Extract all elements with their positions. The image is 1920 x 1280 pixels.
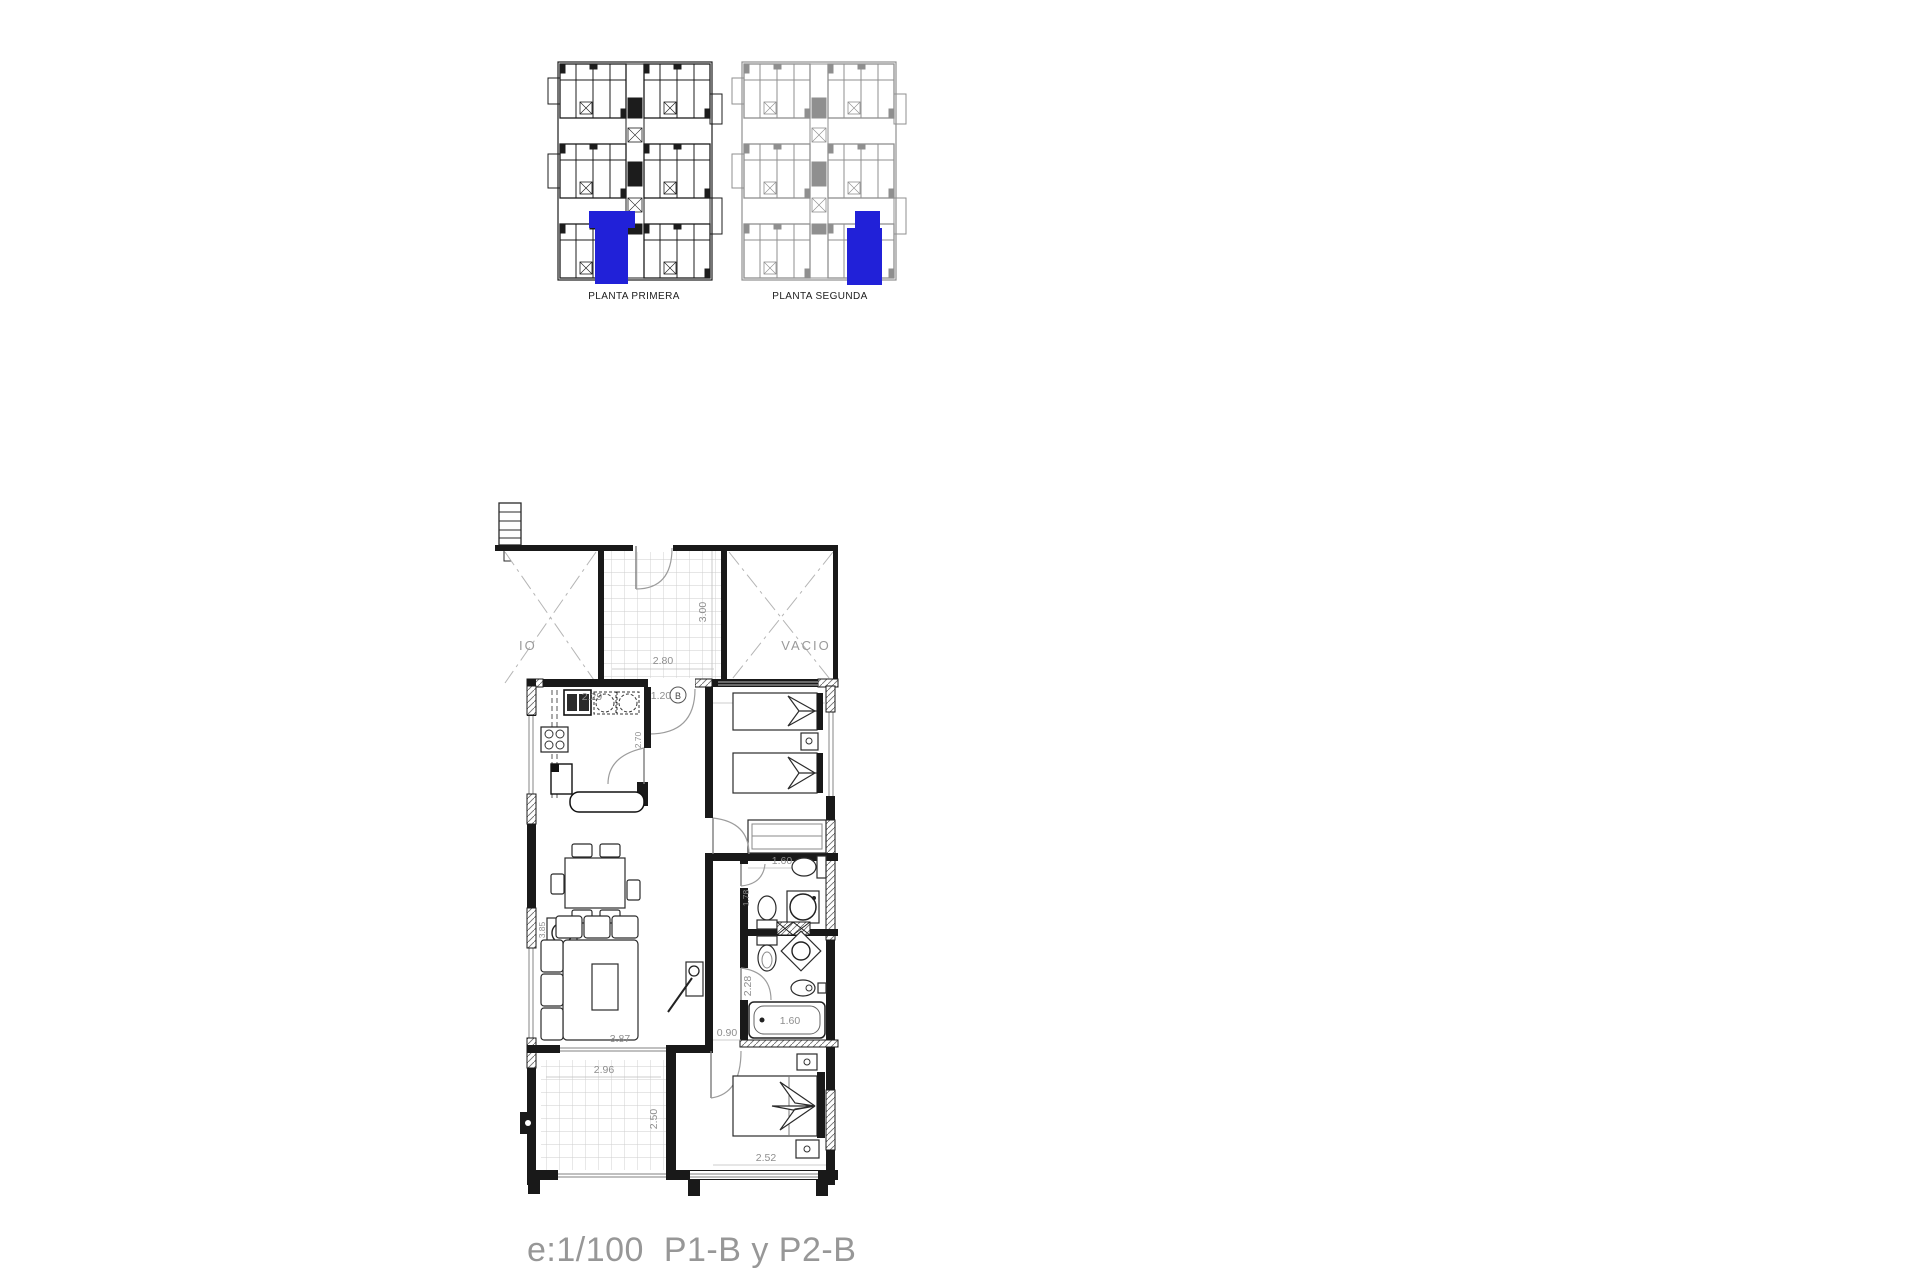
wardrobe <box>748 820 826 853</box>
round-sink <box>787 891 819 923</box>
washer-counter <box>777 922 810 935</box>
dim-kitchen-side: 2.70 <box>633 731 643 748</box>
kitchen-appliances <box>594 692 639 714</box>
bedroom2-door <box>713 818 749 854</box>
bathroom-1: 1.60 1.78 <box>741 855 826 935</box>
nightstand <box>801 733 818 750</box>
toilet-low <box>757 936 777 971</box>
architectural-sheet: IO VACIO 2.80 3.00 <box>0 0 1920 1280</box>
corridor: 0.90 <box>713 1027 741 1040</box>
bathroom-2: 2.28 1.60 <box>741 931 826 1038</box>
lower-terrace: 2.96 2.50 <box>541 1060 666 1170</box>
toilet-mid <box>757 896 777 929</box>
living-dining-room: 3.85 3.87 <box>537 844 703 1045</box>
left-wall <box>520 679 537 1185</box>
sofa <box>541 916 638 1040</box>
overview-plan-primera <box>548 62 722 284</box>
overview-plan-segunda <box>732 62 906 285</box>
dim-porch-width: 2.80 <box>653 655 674 667</box>
double-bed <box>733 1072 825 1138</box>
dim-porch-depth: 3.00 <box>697 602 709 623</box>
void-left-label: IO <box>519 638 537 653</box>
void-right: VACIO <box>729 552 833 683</box>
sheet-caption: e:1/100 P1-B y P2-B <box>527 1231 856 1270</box>
dim-bath-side: 1.78 <box>741 889 751 906</box>
single-bed-1 <box>733 693 823 730</box>
dim-living-width: 3.87 <box>610 1033 631 1045</box>
dim-bath-corridor: 2.28 <box>742 976 754 997</box>
highlighted-unit-segunda <box>847 211 882 285</box>
dim-tub: 1.60 <box>780 1015 801 1027</box>
bedroom-2: 2.52 <box>713 691 826 854</box>
tv-unit <box>668 962 703 1012</box>
corner-sink <box>781 931 821 971</box>
dining-set <box>551 844 640 923</box>
bidet <box>791 980 826 996</box>
entrance-hall: 1.20 B <box>651 687 686 703</box>
plan-primera-label: PLANTA PRIMERA <box>588 291 680 302</box>
main-floor-plan: IO VACIO 2.80 3.00 <box>495 503 838 1196</box>
nightstand-top <box>797 1054 817 1070</box>
dim-terrace-width: 2.96 <box>594 1064 615 1076</box>
dim-bath-top-width: 1.60 <box>772 855 793 867</box>
dim-hall-width: 0.90 <box>717 1027 738 1039</box>
porch-terrace: 2.80 3.00 <box>598 545 727 686</box>
kitchen-door <box>608 748 644 784</box>
single-bed-2 <box>733 753 823 793</box>
dim-entrance: 1.20 <box>651 690 672 702</box>
door-tag-label: B <box>675 691 681 701</box>
highlighted-unit-primera <box>589 211 635 284</box>
dim-terrace-depth: 2.50 <box>648 1109 660 1130</box>
plan-segunda-label: PLANTA SEGUNDA <box>772 291 867 302</box>
stair-structure <box>499 503 521 561</box>
bedroom-1: 2.52 <box>711 1051 826 1165</box>
fridge <box>551 764 572 794</box>
void-left: IO <box>505 552 596 683</box>
coffee-table <box>592 964 618 1010</box>
void-right-label: VACIO <box>781 638 831 653</box>
toilet-top <box>792 856 826 878</box>
dim-kitchen-top: 2.29 <box>582 691 603 703</box>
kitchen-peninsula <box>570 792 644 812</box>
dim-bedroom1-width: 2.52 <box>756 1152 777 1164</box>
bottom-wall <box>527 1169 838 1196</box>
floor-plan-drawing: IO VACIO 2.80 3.00 <box>0 0 1920 1280</box>
kitchen: 2.29 2.70 <box>541 690 644 812</box>
cooktop <box>541 727 568 752</box>
nightstand-bottom <box>796 1140 819 1158</box>
bathtub: 1.60 <box>749 1002 825 1038</box>
dim-living-side: 3.85 <box>537 921 547 938</box>
